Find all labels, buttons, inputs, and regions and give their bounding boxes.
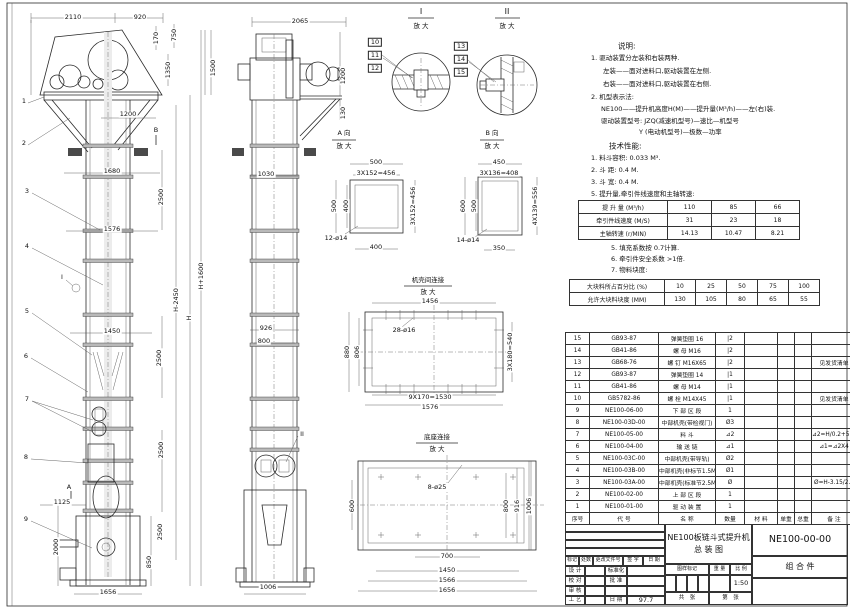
bom-cell: 螺 母 M16 <box>659 345 716 357</box>
value-cell: 105 <box>696 293 727 306</box>
detail-label: 880 <box>344 345 351 359</box>
bom-cell: 1 <box>716 501 745 513</box>
note-line: 左装——面对进料口,驱动装置在左侧. <box>602 68 712 75</box>
title-block-cell <box>565 532 665 540</box>
note-line: 5. 提升量,牵引件线速度和主轴转速: <box>590 191 696 198</box>
dimension-label: I <box>60 274 64 281</box>
part-callout: 12 <box>368 64 382 73</box>
value-cell: 23 <box>712 214 756 227</box>
dimension-label: B <box>153 127 159 134</box>
title-block-cell: 工 艺 <box>565 596 585 605</box>
title-block-cell <box>665 575 676 592</box>
detail-label: 916 <box>514 499 521 513</box>
value-cell: 85 <box>712 201 756 214</box>
bom-cell: Ø <box>716 477 745 489</box>
title-block-cell: 日 期 <box>605 596 627 605</box>
title-block-cell: 图样标记 <box>665 564 709 575</box>
tech-performance-table: 提 升 量 (M³/h)1108566牵引件线速度 (M/S)312318主轴转… <box>578 200 800 240</box>
bom-cell <box>778 429 795 441</box>
bom-cell: 螺 母 M14 <box>659 381 716 393</box>
detail-label: 9X170=1530 <box>408 394 453 401</box>
part-callout: 9 <box>23 516 29 523</box>
bom-cell: Ø3 <box>716 417 745 429</box>
bom-cell <box>778 369 795 381</box>
title-block-cell <box>627 576 665 586</box>
dimension-label: 750 <box>171 28 178 42</box>
title-block-cell <box>565 548 665 556</box>
bom-cell: 12 <box>566 369 590 381</box>
bom-cell: GB5782-86 <box>590 393 659 405</box>
bom-cell <box>778 417 795 429</box>
note-line: 驱动装置型号: JZQ(减速机型号)—速比—机型号 <box>600 118 740 125</box>
value-cell: 50 <box>727 280 758 293</box>
bom-cell: NE100-03B-00 <box>590 465 659 477</box>
detail-label: 800 <box>503 499 510 513</box>
bom-cell <box>812 369 850 381</box>
bom-cell <box>745 489 778 501</box>
bom-cell: |2 <box>716 333 745 345</box>
note-line: 6. 牵引件安全系数 >1倍. <box>610 256 686 263</box>
detail-label: B 向 <box>484 130 499 137</box>
bom-header-cell: 材 料 <box>745 513 778 525</box>
bom-cell: GB41-86 <box>590 381 659 393</box>
title-block-cell <box>627 566 665 576</box>
bom-cell <box>812 465 850 477</box>
detail-label: 500 <box>331 199 338 213</box>
part-callout: 4 <box>24 243 30 250</box>
part-callout: 13 <box>454 42 468 51</box>
value-cell: 18 <box>756 214 800 227</box>
value-cell: 80 <box>727 293 758 306</box>
detail-label: 400 <box>369 244 383 251</box>
dimension-label: 1200 <box>119 111 138 118</box>
bom-parts-list: 15GB93-87弹簧垫圈 16|214GB41-86螺 母 M16|213GB… <box>565 332 850 525</box>
value-cell: 31 <box>668 214 712 227</box>
bom-cell <box>745 393 778 405</box>
bom-cell: NE100-02-00 <box>590 489 659 501</box>
bom-cell: 料 斗 <box>659 429 716 441</box>
dimension-label: H <box>186 315 193 322</box>
dimension-label: 2500 <box>156 349 163 368</box>
detail-label: 3X180=540 <box>507 332 514 373</box>
dimension-label: 170 <box>153 31 160 45</box>
detail-label: 450 <box>492 159 506 166</box>
detail-label: 400 <box>343 199 350 213</box>
bom-cell <box>745 429 778 441</box>
title-block-cell <box>709 575 730 592</box>
title-block-cell <box>585 566 605 576</box>
title-block-cell: 标记 <box>565 556 579 566</box>
title-block-cell <box>565 524 665 532</box>
bom-cell <box>795 381 812 393</box>
detail-label: 3X136=408 <box>479 170 520 177</box>
bom-cell <box>795 333 812 345</box>
title-block-cell: 1:50 <box>730 575 752 592</box>
detail-label: 12-ø14 <box>324 235 349 242</box>
title-block-cell: 校 对 <box>565 576 585 586</box>
bom-cell: |2 <box>716 357 745 369</box>
dimension-label: 920 <box>133 14 147 21</box>
bom-cell <box>795 345 812 357</box>
note-line: 说明: <box>617 42 637 50</box>
bom-cell: 见发货清单 <box>812 393 850 405</box>
bom-cell <box>795 501 812 513</box>
bom-header-cell: 代 号 <box>590 513 659 525</box>
bom-cell: |1 <box>716 393 745 405</box>
bom-cell <box>795 429 812 441</box>
note-line: 右装——面对进料口,驱动装置在右侧. <box>602 81 712 88</box>
bom-cell: 见发货清单 <box>812 357 850 369</box>
value-cell: 55 <box>789 293 820 306</box>
title-block-cell: 审 核 <box>565 586 585 596</box>
dimension-label: 1656 <box>99 589 118 596</box>
detail-label: I <box>419 8 423 16</box>
note-line: 3. 斗 宽: 0.4 M. <box>590 179 640 186</box>
drawing-sheet: 2110920170750135015001200168025001576H-2… <box>0 0 850 609</box>
row-label: 主轴转速 (r/MIN) <box>579 227 668 240</box>
title-block-cell: NE100板链斗式提升机 总 装 图 <box>665 524 752 564</box>
bom-header-cell: 总重 <box>795 513 812 525</box>
value-cell: 65 <box>758 293 789 306</box>
dimension-label: A <box>66 484 72 491</box>
bom-cell <box>812 489 850 501</box>
dimension-label: 1500 <box>210 59 217 78</box>
bom-cell: 6 <box>566 441 590 453</box>
bom-cell <box>812 381 850 393</box>
dimension-label: 1006 <box>259 584 278 591</box>
detail-label: 1576 <box>421 404 440 411</box>
value-cell: 75 <box>758 280 789 293</box>
detail-label: II <box>504 8 511 16</box>
bom-cell: 7 <box>566 429 590 441</box>
dimension-label: 2500 <box>158 441 165 460</box>
bom-cell: ⊿1 <box>716 441 745 453</box>
title-block-cell <box>605 586 627 596</box>
detail-label: 底座连接 <box>423 434 451 441</box>
dimension-label: 850 <box>146 555 153 569</box>
bom-cell: GB93-87 <box>590 333 659 345</box>
title-block-cell: 签 字 <box>623 556 643 566</box>
title-block-cell <box>585 576 605 586</box>
row-label: 牵引件线速度 (M/S) <box>579 214 668 227</box>
part-callout: 8 <box>23 454 29 461</box>
note-line: 技术性能: <box>608 142 643 150</box>
detail-label: 1456 <box>421 298 440 305</box>
bom-cell: NE100-03C-00 <box>590 453 659 465</box>
dimension-label: 1125 <box>53 499 72 506</box>
title-block-cell <box>585 596 605 605</box>
bom-cell: 1 <box>566 501 590 513</box>
dimension-label: 2500 <box>158 188 165 207</box>
note-line: Y (电动机型号)—极数—功率 <box>638 129 723 136</box>
title-block-cell <box>687 575 698 592</box>
bom-cell <box>745 501 778 513</box>
title-block-cell <box>565 540 665 548</box>
bom-cell: 中部机壳(非标节1.5M,1M) <box>659 465 716 477</box>
bom-cell <box>795 405 812 417</box>
bom-cell <box>778 501 795 513</box>
detail-label: 600 <box>460 199 467 213</box>
bom-cell <box>778 489 795 501</box>
bom-cell: Ø=H-3.15/2.5 <box>812 477 850 489</box>
bom-cell: NE100-06-00 <box>590 405 659 417</box>
bom-cell: 2 <box>566 489 590 501</box>
title-block-cell: 日 期 <box>643 556 665 566</box>
detail-label: 500 <box>369 159 383 166</box>
bom-cell <box>778 405 795 417</box>
bom-header-cell: 序号 <box>566 513 590 525</box>
detail-label: 放 大 <box>498 23 515 30</box>
detail-label: 4X139=556 <box>532 186 539 227</box>
bom-cell <box>795 453 812 465</box>
bom-cell: 3 <box>566 477 590 489</box>
bom-cell: NE100-03D-00 <box>590 417 659 429</box>
part-callout: 2 <box>21 140 27 147</box>
bom-cell <box>795 441 812 453</box>
part-callout: 10 <box>368 38 382 47</box>
dimension-label: 130 <box>340 106 347 120</box>
part-callout: 3 <box>24 188 30 195</box>
bom-cell: 14 <box>566 345 590 357</box>
detail-label: 28-ø16 <box>392 327 417 334</box>
bom-cell <box>778 393 795 405</box>
bom-cell <box>795 477 812 489</box>
detail-label: 放 大 <box>412 23 429 30</box>
bom-cell <box>778 381 795 393</box>
dimension-label: H-2450 <box>173 287 180 313</box>
row-label: 允许大块料块度 (MM) <box>570 293 665 306</box>
value-cell: 10.47 <box>712 227 756 240</box>
value-cell: 130 <box>665 293 696 306</box>
title-block-cell: 处数 <box>579 556 593 566</box>
part-callout: 6 <box>23 353 29 360</box>
title-block-cell <box>627 586 665 596</box>
bom-cell: |1 <box>716 381 745 393</box>
detail-label: 600 <box>349 499 356 513</box>
bom-cell: 输 送 链 <box>659 441 716 453</box>
bom-cell <box>745 405 778 417</box>
bom-cell <box>778 477 795 489</box>
bom-cell: 弹簧垫圈 14 <box>659 369 716 381</box>
bom-cell <box>812 333 850 345</box>
dimension-label: 1030 <box>257 171 276 178</box>
bom-cell <box>745 381 778 393</box>
value-cell: 66 <box>756 201 800 214</box>
bom-cell: 中部机壳(标准节2.5M) <box>659 477 716 489</box>
part-callout: 14 <box>454 55 468 64</box>
part-callout: 7 <box>24 396 30 403</box>
detail-label: 1450 <box>438 567 457 574</box>
value-cell: 8.21 <box>756 227 800 240</box>
detail-label: 放 大 <box>335 143 352 150</box>
dimension-label: 2500 <box>157 523 164 542</box>
bom-cell <box>778 453 795 465</box>
part-callout: 1 <box>21 98 27 105</box>
note-line: 5. 填充系数按 0.7计算. <box>610 245 680 252</box>
bom-cell: 9 <box>566 405 590 417</box>
bom-header-cell: 单重 <box>778 513 795 525</box>
bom-header-cell: 名 称 <box>659 513 716 525</box>
bom-cell <box>812 345 850 357</box>
bom-cell <box>795 357 812 369</box>
bom-cell: 下 部 区 段 <box>659 405 716 417</box>
dimension-label: 2000 <box>53 538 60 557</box>
detail-label: 500 <box>471 199 478 213</box>
detail-label: 放 大 <box>419 289 436 296</box>
note-line: 1. 料斗容积: 0.033 M³. <box>590 155 661 162</box>
bom-cell <box>745 477 778 489</box>
note-line: 1. 驱动装置分左装和右装两种. <box>590 55 680 62</box>
value-cell: 10 <box>665 280 696 293</box>
title-block-cell <box>698 575 709 592</box>
bom-cell: 螺 钉 M16X65 <box>659 357 716 369</box>
detail-label: 放 大 <box>483 143 500 150</box>
part-callout: 11 <box>368 51 382 60</box>
note-line: 2. 斗 距: 0.4 M. <box>590 167 640 174</box>
bom-cell: Ø1 <box>716 465 745 477</box>
title-block-cell: 97.7 <box>627 596 665 605</box>
detail-label: 放 大 <box>428 446 445 453</box>
title-block-cell: 更改文件号 <box>593 556 623 566</box>
bom-cell <box>745 369 778 381</box>
bom-cell: ⊿2=H/0.2+5.75 <box>812 429 850 441</box>
note-line: NE100——提升机高度H(M)——提升量(M³/h)——左(右)装. <box>600 106 776 113</box>
bom-cell: 8 <box>566 417 590 429</box>
title-block-cell: NE100-00-00 <box>752 524 848 556</box>
bom-cell: 弹簧垫圈 16 <box>659 333 716 345</box>
detail-label: 1656 <box>438 587 457 594</box>
dimension-label: 1350 <box>165 61 172 80</box>
dimension-label: 1200 <box>340 67 347 86</box>
bom-cell <box>745 333 778 345</box>
bom-cell <box>745 345 778 357</box>
title-block-cell <box>676 575 687 592</box>
dimension-label: 1576 <box>103 226 122 233</box>
bom-cell: GB41-86 <box>590 345 659 357</box>
title-block-cell: 重 量 <box>709 564 730 575</box>
bom-cell <box>778 333 795 345</box>
dimension-label: 1680 <box>103 168 122 175</box>
part-callout: 5 <box>24 308 30 315</box>
bom-cell: 螺 栓 M14X45 <box>659 393 716 405</box>
detail-label: 3X152=456 <box>410 186 417 227</box>
bom-cell: 10 <box>566 393 590 405</box>
title-block-cell <box>752 578 848 605</box>
bom-cell: ⊿2 <box>716 429 745 441</box>
bom-cell: 中部机壳(带导轨) <box>659 453 716 465</box>
title-block-cell: 第 张 <box>709 592 752 605</box>
bom-header-cell: 数量 <box>716 513 745 525</box>
bom-cell: NE100-03A-00 <box>590 477 659 489</box>
bom-cell <box>812 405 850 417</box>
bom-cell: NE100-04-00 <box>590 441 659 453</box>
value-cell: 14.13 <box>668 227 712 240</box>
dimension-label: 800 <box>257 338 271 345</box>
bom-cell: 5 <box>566 453 590 465</box>
bom-cell: Ø2 <box>716 453 745 465</box>
bom-cell: 11 <box>566 381 590 393</box>
bom-cell: NE100-05-00 <box>590 429 659 441</box>
detail-label: A 向 <box>336 130 351 137</box>
value-cell: 100 <box>789 280 820 293</box>
bom-cell: GB93-87 <box>590 369 659 381</box>
note-line: 2. 机型表示法: <box>590 94 635 101</box>
bom-cell <box>795 393 812 405</box>
bom-cell <box>745 453 778 465</box>
detail-label: 1566 <box>438 577 457 584</box>
bom-header-cell: 备 注 <box>812 513 850 525</box>
bom-cell <box>745 417 778 429</box>
bom-cell <box>795 417 812 429</box>
bom-cell: 4 <box>566 465 590 477</box>
dimension-label: II <box>299 431 305 438</box>
bom-cell <box>795 369 812 381</box>
bom-cell <box>812 453 850 465</box>
title-block-cell: 批 准 <box>605 576 627 586</box>
bom-cell <box>795 489 812 501</box>
bom-cell <box>795 465 812 477</box>
row-label: 提 升 量 (M³/h) <box>579 201 668 214</box>
bom-cell: ⊿1=⊿2X4 <box>812 441 850 453</box>
title-block-cell: 共 张 <box>665 592 709 605</box>
detail-label: 350 <box>492 245 506 252</box>
bom-cell <box>778 357 795 369</box>
title-block-cell: 比 例 <box>730 564 752 575</box>
bom-cell: NE100-01-00 <box>590 501 659 513</box>
title-block-cell <box>585 586 605 596</box>
dimension-label: 1450 <box>103 328 122 335</box>
dimension-label: 926 <box>259 325 273 332</box>
detail-label: 806 <box>354 345 361 359</box>
note-line: 7. 物料块度: <box>610 267 648 274</box>
bom-cell: 1 <box>716 489 745 501</box>
title-block-cell: 标准化 <box>605 566 627 576</box>
dimension-label: 2110 <box>64 14 83 21</box>
bom-cell <box>745 465 778 477</box>
detail-label: 8-ø25 <box>427 484 448 491</box>
value-cell: 25 <box>696 280 727 293</box>
detail-label: 机壳间连接 <box>411 277 446 284</box>
bom-cell: 1 <box>716 405 745 417</box>
lump-size-table: 大块料所占百分比 (%)10255075100允许大块料块度 (MM)13010… <box>569 279 820 306</box>
value-cell: 110 <box>668 201 712 214</box>
row-label: 大块料所占百分比 (%) <box>570 280 665 293</box>
bom-cell: 驱 动 装 置 <box>659 501 716 513</box>
bom-cell <box>745 357 778 369</box>
bom-cell <box>745 441 778 453</box>
detail-label: 3X152=456 <box>356 170 397 177</box>
bom-cell <box>778 465 795 477</box>
title-block-cell: 设 计 <box>565 566 585 576</box>
bom-cell: 中部机壳(带检视门) <box>659 417 716 429</box>
detail-label: 1006 <box>526 497 533 516</box>
bom-cell: |1 <box>716 369 745 381</box>
bom-cell: |2 <box>716 345 745 357</box>
detail-label: 14-ø14 <box>456 237 481 244</box>
part-callout: 15 <box>454 68 468 77</box>
bom-cell: 15 <box>566 333 590 345</box>
bom-cell: GB68-76 <box>590 357 659 369</box>
bom-cell: 13 <box>566 357 590 369</box>
bom-cell <box>812 417 850 429</box>
bom-cell <box>778 441 795 453</box>
bom-cell <box>778 345 795 357</box>
dimension-label: H+1600 <box>198 262 205 291</box>
bom-cell: 上 部 区 段 <box>659 489 716 501</box>
bom-cell <box>812 501 850 513</box>
title-block-cell: 组 合 件 <box>752 556 848 578</box>
dimension-label: 2065 <box>291 18 310 25</box>
